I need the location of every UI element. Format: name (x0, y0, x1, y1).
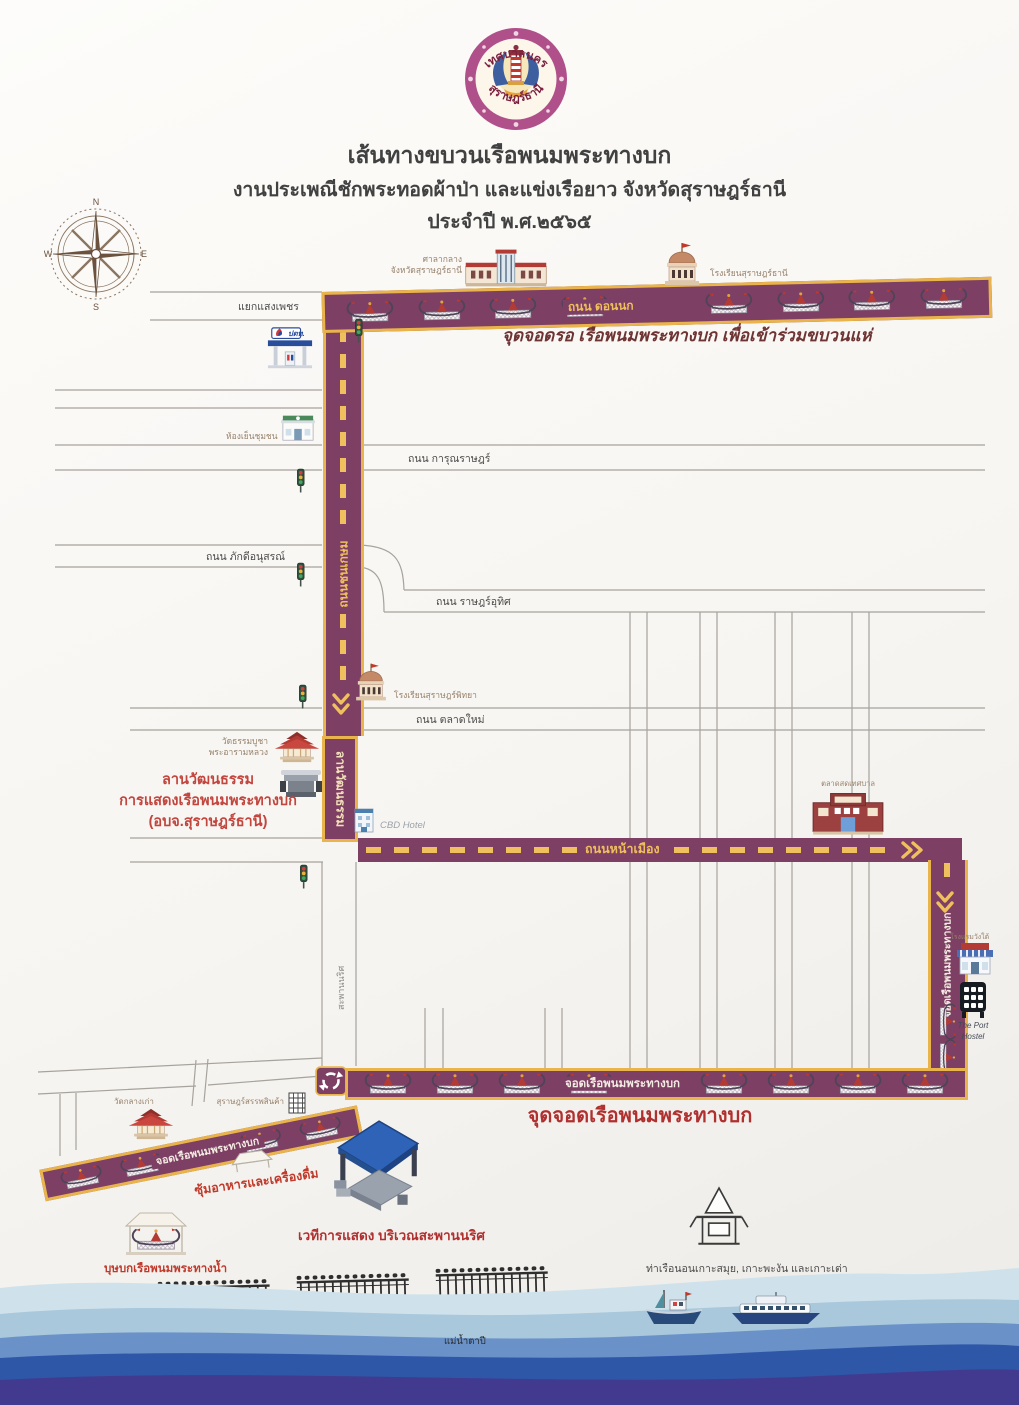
wat-thammabucha-label-line1: วัดธรรมบูชา (222, 736, 268, 746)
pier-pavilion-icon (688, 1186, 750, 1252)
suratthani-school-icon (658, 240, 706, 288)
route-band-namueang: ถนนหน้าเมือง (358, 838, 962, 862)
ptt-sign-label: ปตท. (288, 328, 305, 340)
taladmai-road-label: ถนน ตลาดใหม่ (416, 711, 485, 728)
traffic-light-icon (295, 468, 306, 493)
traffic-light-icon (298, 864, 309, 889)
culture-lawn-label-line3: (อบจ.สุราษฎร์ธานี) (149, 814, 268, 830)
procession-boat-icon (898, 1073, 952, 1095)
port-hostel-icon (954, 980, 992, 1020)
wat-klang-kao-icon (126, 1108, 176, 1140)
procession-boat-icon (428, 1073, 482, 1095)
procession-route-poster: เทศบาลนคร สุราษฎร์ธานี เส้นทางขบวนเรือพน… (0, 0, 1019, 1405)
procession-boat-icon (56, 1162, 107, 1193)
department-store-label: สุราษฎร์สรรพสินค้า (210, 1097, 284, 1108)
route-band-bottom-parking: จอดเรือพนมพระทางบก (345, 1068, 968, 1100)
river-label: แม่น้ำตาปี (444, 1334, 486, 1349)
cbd-hotel-label: CBD Hotel (380, 820, 425, 831)
provincial-hall-icon (464, 246, 548, 290)
busabok-boat-icon (122, 1210, 190, 1260)
culture-lawn-label-line2: การแสดงเรือพนมพระทางบก (119, 793, 297, 809)
traffic-light-icon (297, 684, 308, 709)
suratthani-school-label: โรงเรียนสุราษฎร์ธานี (710, 268, 788, 279)
wat-thammabucha-label-line2: พระอารามหลวง (209, 747, 268, 757)
provincial-hall-label-line1: ศาลากลาง (423, 254, 462, 264)
namueang-road-label: ถนนหน้าเมือง (580, 842, 665, 858)
provincial-hall-label-line2: จังหวัดสุราษฎร์ธานี (391, 265, 462, 275)
market-label: ตลาดสดเทศบาล (806, 779, 890, 789)
procession-boat-icon (764, 1073, 818, 1095)
route-dash-line (340, 328, 346, 684)
chonkasem-road-label: ถนนชนเกษม (336, 535, 351, 612)
performance-stage-label: เวทีการแสดง บริเวณสะพานนริศ (298, 1224, 485, 1246)
suratpittaya-school-label: โรงเรียนสุราษฎร์พิทยา (394, 690, 477, 701)
procession-boat-icon (697, 1073, 751, 1095)
procession-boat-icon (495, 1073, 549, 1095)
community-store-label: ห้องเย็นชุมชน (226, 431, 278, 442)
culture-lawn-label-line1: ลานวัฒนธรรม (162, 772, 254, 788)
procession-boat-icon (486, 297, 540, 320)
arrow-down-icon (331, 692, 351, 718)
procession-boat-icon (701, 292, 755, 315)
procession-boat-icon (343, 300, 397, 323)
karunrat-road-label: ถนน การุณราษฎร์ (408, 450, 490, 467)
wat-thammabucha-icon (272, 731, 322, 763)
roundabout-icon (315, 1066, 347, 1096)
tapi-river-waves (0, 1258, 1019, 1405)
bottom-parking-label: จอดเรือพนมพระทางบก (560, 1077, 685, 1091)
procession-boat-icon (773, 290, 827, 313)
procession-boat-icon (414, 298, 468, 321)
port-hostel-label-line2: Hostel (962, 1032, 985, 1041)
procession-boat-icon (845, 288, 899, 311)
market-icon (810, 790, 886, 836)
suratpittaya-school-icon (350, 660, 392, 704)
street-grid (0, 0, 1019, 1405)
arrow-right-icon (901, 839, 925, 861)
procession-boat-icon (917, 287, 971, 310)
performance-stage-icon (326, 1112, 426, 1216)
fishing-boat-icon (642, 1288, 706, 1328)
donnok-road-label: ถนน ดอนนก (563, 298, 639, 315)
port-hostel-label-line1: The Port (958, 1021, 989, 1030)
bottom-parking-caption: จุดจอดเรือพนมพระทางบก (528, 1099, 753, 1131)
wat-klang-kao-label: วัดกลางเก่า (114, 1097, 154, 1108)
naris-bridge-road-label: สะพานนริศ (334, 966, 348, 1010)
ratuthit-road-label: ถนน ราษฎร์อุทิศ (436, 593, 511, 610)
route-dash-line (944, 863, 950, 889)
wangtai-hotel-label: โรงแรมวังใต้ (950, 933, 989, 942)
saengphet-intersection-label: แยกแสงเพชร (238, 298, 299, 315)
waiting-point-caption: จุดจอดรอ เรือพนมพระทางบก เพื่อเข้าร่วมขบ… (502, 322, 872, 349)
culture-lane-label: ลานวัฒนธรรม (333, 746, 348, 832)
community-store-icon (278, 410, 318, 444)
phakdi-road-label: ถนน ภักดีอนุสรณ์ (206, 548, 285, 565)
traffic-light-icon (295, 562, 306, 587)
procession-boat-icon (361, 1073, 415, 1095)
wangtai-hotel-icon (954, 942, 996, 978)
cbd-hotel-icon (352, 804, 376, 834)
department-store-icon (288, 1092, 306, 1114)
ferry-boat-icon (728, 1292, 824, 1326)
traffic-light-icon (353, 318, 364, 343)
procession-boat-icon (831, 1073, 885, 1095)
